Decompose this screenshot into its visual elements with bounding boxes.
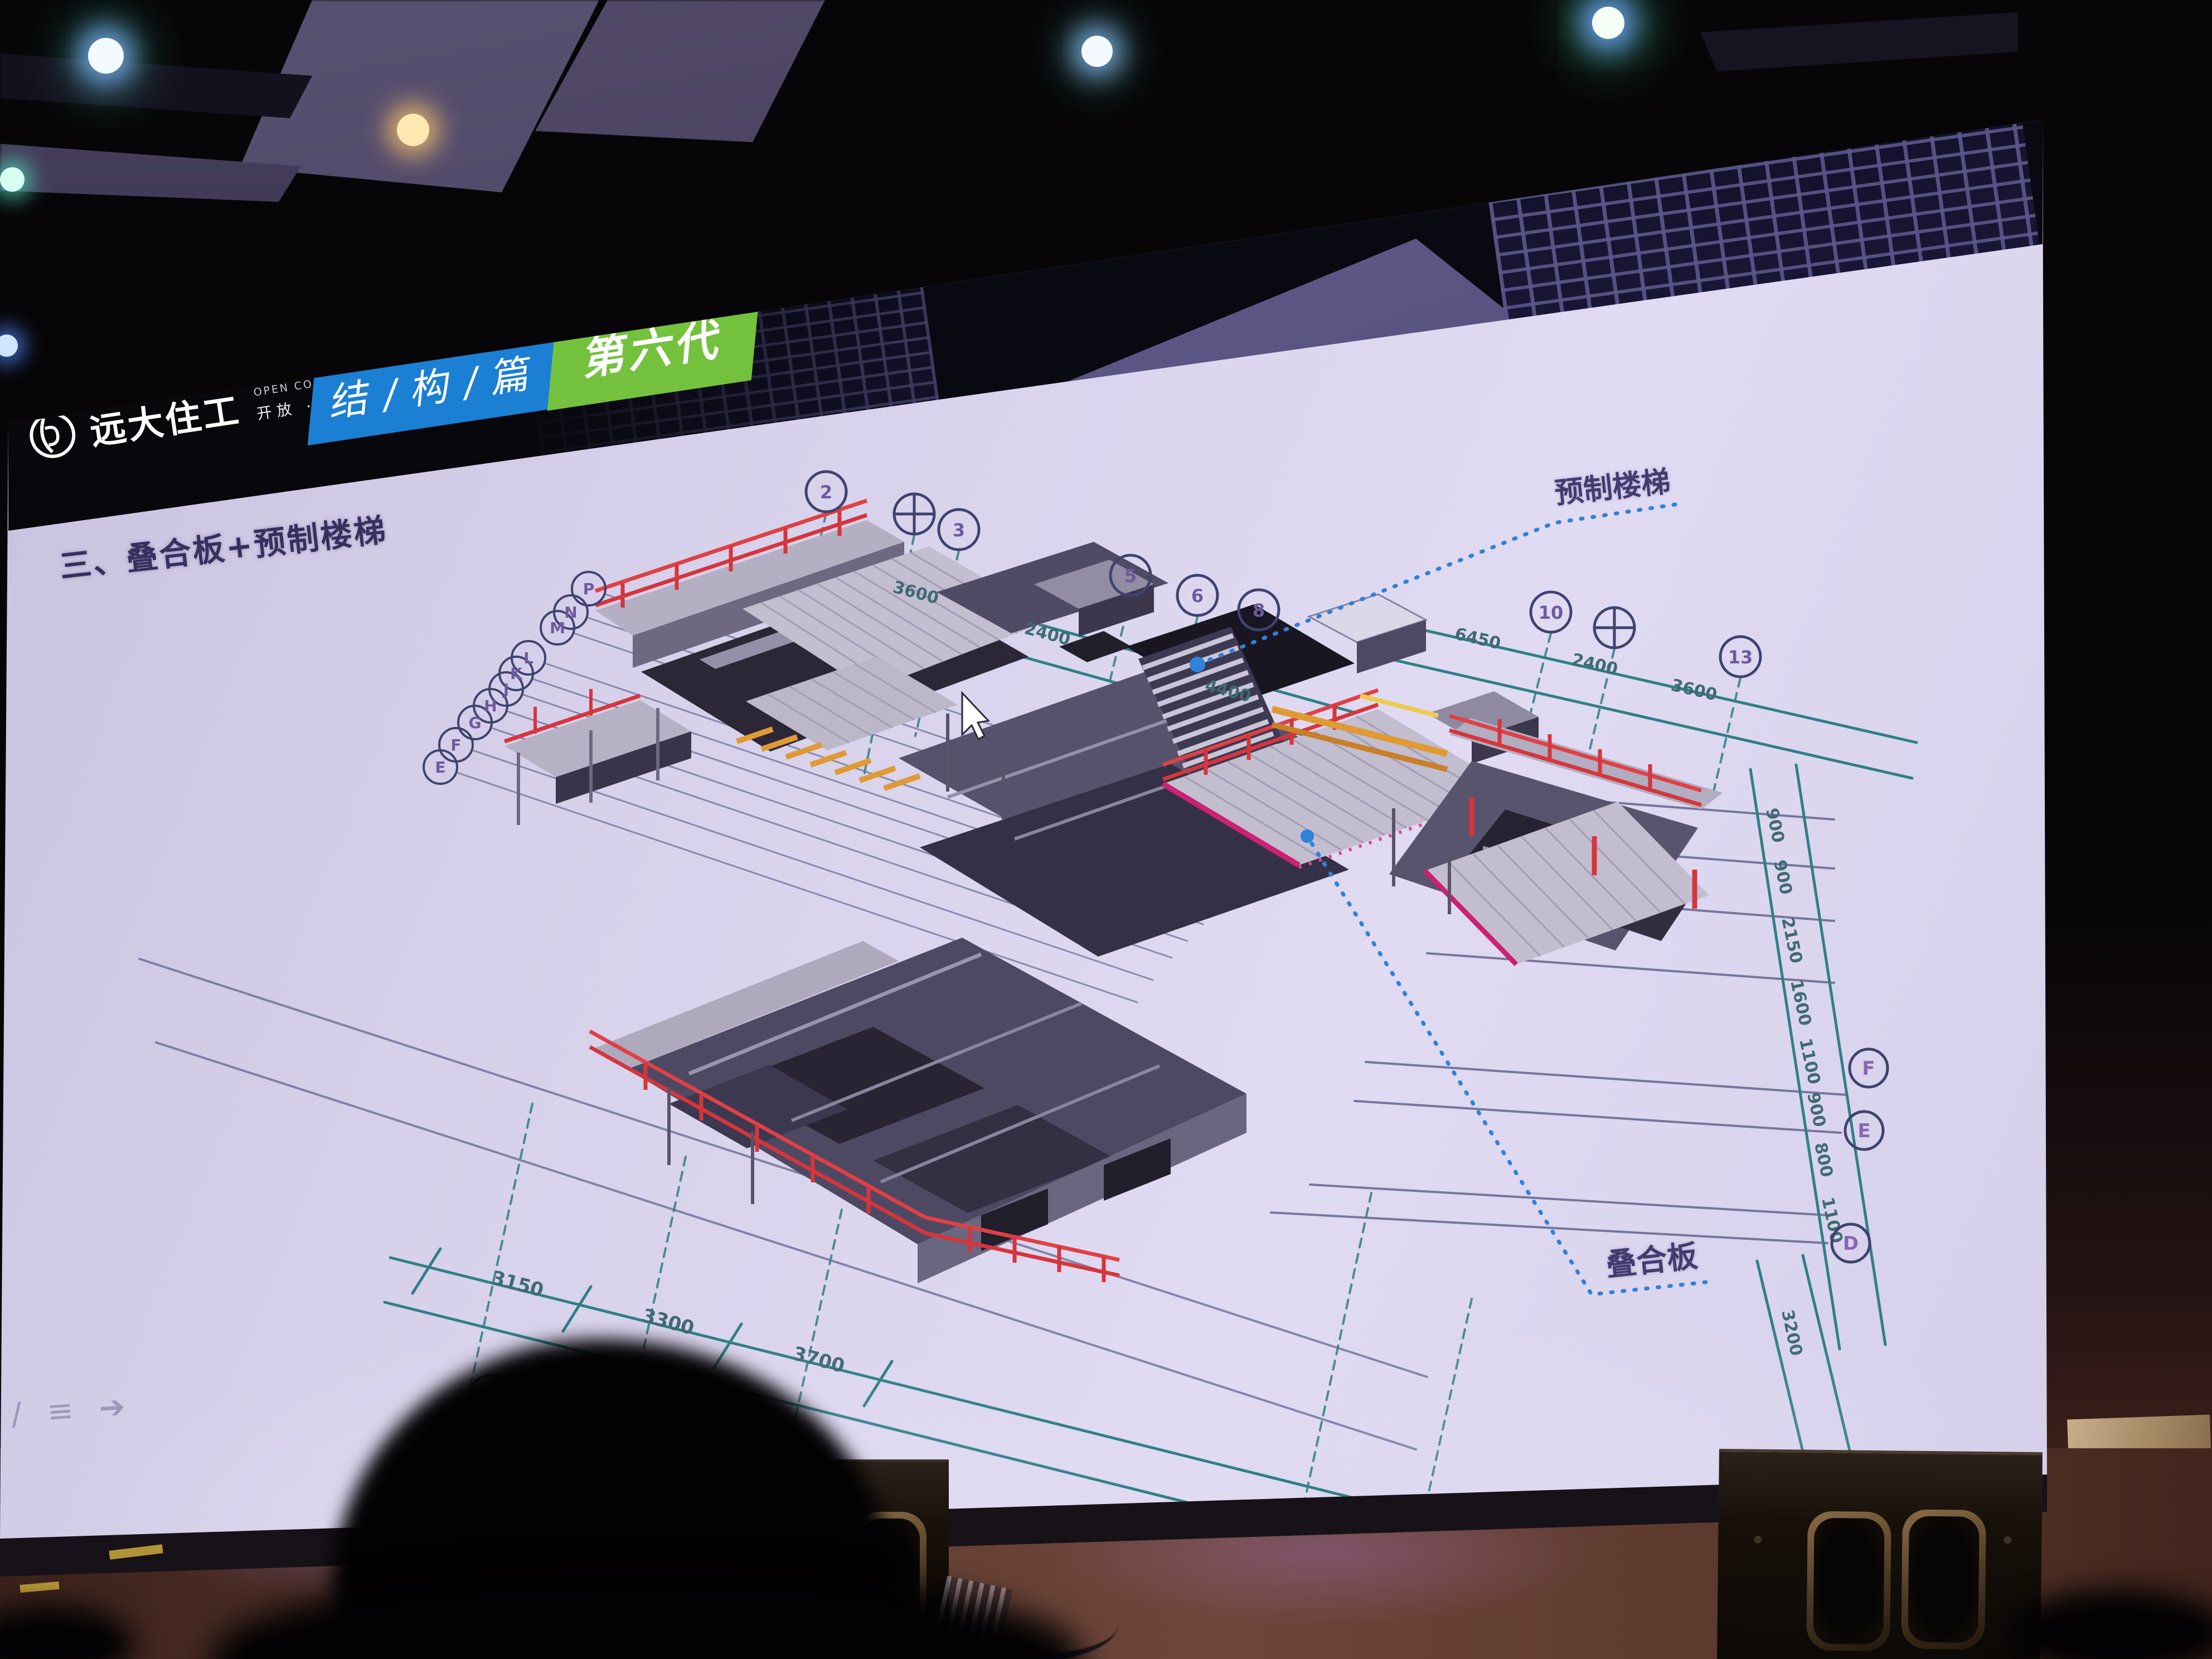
grid-bubble-label: G bbox=[469, 714, 482, 732]
grid-bubble-label: D bbox=[1843, 1233, 1859, 1255]
dim-label: 3700 bbox=[790, 1342, 847, 1377]
grid-bubble-label: F bbox=[450, 736, 461, 754]
speaker-port bbox=[1806, 1511, 1891, 1652]
speaker-port bbox=[1901, 1509, 1986, 1650]
grid-bubble-label: 3 bbox=[953, 520, 965, 541]
dim-label: 900 bbox=[1803, 1090, 1829, 1129]
list-icon: ≡ bbox=[46, 1392, 75, 1430]
dim-label: 800 bbox=[1810, 1141, 1836, 1179]
grid-bubble-label: 2 bbox=[820, 482, 832, 503]
grid-bubble-label: K bbox=[510, 664, 523, 683]
stage-speaker-right bbox=[1717, 1449, 2043, 1659]
dim-label: 1600 bbox=[1786, 978, 1815, 1027]
grid-bubble-label: E bbox=[435, 758, 445, 777]
led-spotlight bbox=[0, 167, 25, 192]
grid-bubble-label: F bbox=[1862, 1058, 1875, 1080]
dim-label: 900 bbox=[1762, 806, 1788, 845]
leader-endpoint bbox=[1190, 657, 1205, 672]
grid-bubble-label: 8 bbox=[1253, 600, 1265, 621]
dim-label: 2400 bbox=[1022, 619, 1073, 649]
grid-bubble-label: 6 bbox=[1191, 585, 1204, 607]
dim-label: 6450 bbox=[1453, 624, 1502, 654]
dim-label: 2150 bbox=[1777, 915, 1806, 965]
speaker-screw bbox=[2004, 1536, 2011, 1544]
grid-bubble-label: M bbox=[550, 619, 565, 637]
dim-label: 3200 bbox=[1777, 1308, 1806, 1357]
grid-bubble-label: 5 bbox=[1124, 565, 1137, 586]
leader-endpoint bbox=[1301, 829, 1314, 843]
led-spotlight bbox=[1081, 36, 1113, 67]
grid-bubble-label: E bbox=[1857, 1120, 1870, 1142]
grid-bubble-label: P bbox=[583, 580, 595, 598]
led-spotlight bbox=[1592, 7, 1624, 39]
grid-bubble-label: 10 bbox=[1539, 602, 1564, 623]
dim-label: 900 bbox=[1769, 858, 1796, 896]
next-arrow-icon: ➔ bbox=[98, 1389, 126, 1427]
dim-label: 3600 bbox=[1669, 676, 1719, 705]
grid-bubble-label: L bbox=[523, 649, 533, 667]
grid-bubble-label: N bbox=[564, 603, 577, 622]
conference-room-photo: 远大住工 OPEN COOPERATION SHARE 开放 · 合作 · 分享… bbox=[0, 0, 2212, 1659]
grid-bubble-label: H bbox=[484, 697, 497, 715]
pen-icon: / bbox=[10, 1396, 23, 1433]
callout-slab-label: 叠合板 bbox=[1603, 1231, 1699, 1285]
led-spotlight bbox=[0, 334, 18, 357]
grid-bubble-label: J bbox=[502, 680, 509, 698]
dim-label: 1100 bbox=[1795, 1036, 1824, 1086]
led-spotlight bbox=[88, 38, 124, 74]
grid-bubble-label: 13 bbox=[1728, 647, 1753, 668]
speaker-screw bbox=[1754, 1536, 1762, 1544]
dim-label: 3150 bbox=[489, 1267, 546, 1302]
dim-label: 3300 bbox=[640, 1304, 697, 1340]
right-wall bbox=[2018, 0, 2212, 1659]
canopy-slab bbox=[505, 689, 691, 825]
led-spotlight-warm bbox=[397, 114, 429, 146]
